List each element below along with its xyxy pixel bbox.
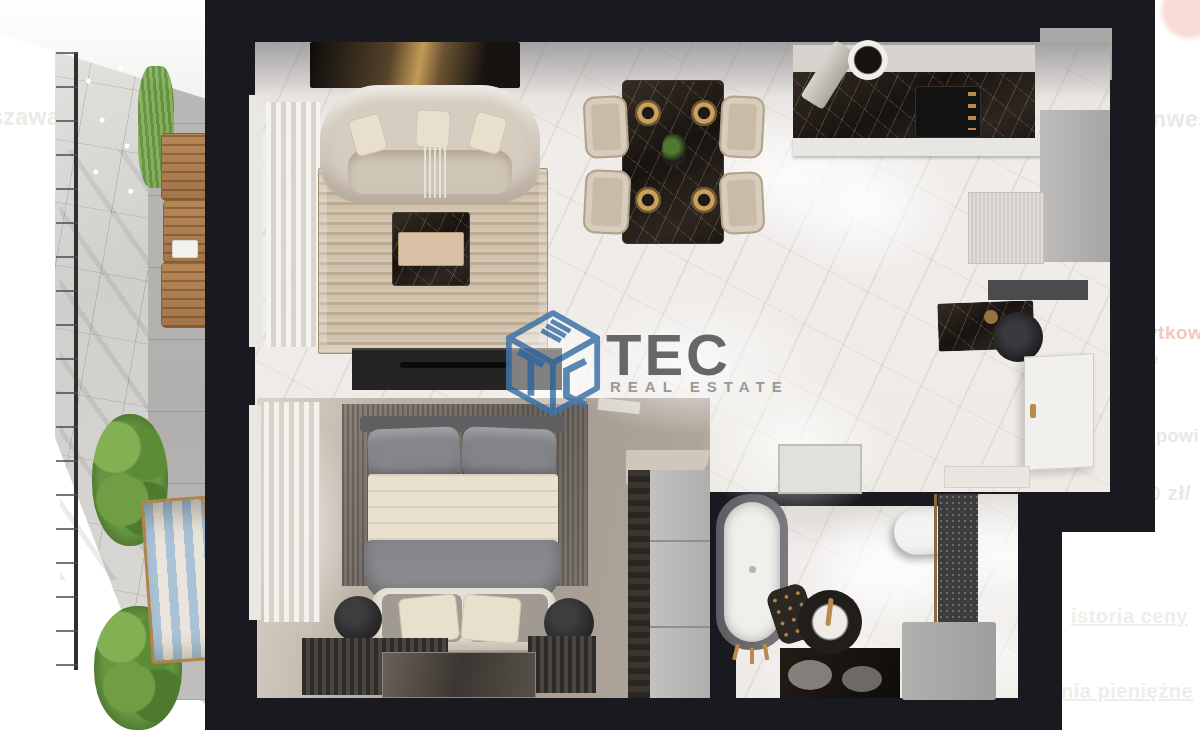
wall-step <box>1016 490 1155 532</box>
wall-bottom <box>205 695 1060 730</box>
window-sill-living <box>249 95 263 347</box>
bed-duvet <box>368 474 558 546</box>
watermark-cube-logo <box>505 310 601 416</box>
bath-faucet <box>750 648 754 664</box>
sofa-throw-fringe <box>424 146 446 198</box>
table-tray <box>172 240 198 258</box>
place-setting <box>634 99 662 127</box>
floorplan-image[interactable]: TEC REAL ESTATE <box>0 0 1200 730</box>
glass-low-table <box>382 652 536 698</box>
fridge-cabinet <box>968 192 1044 264</box>
bedroom-curtains <box>264 402 320 622</box>
table-centerpiece <box>662 134 686 166</box>
tv-console-slot <box>400 362 510 368</box>
wall-top <box>255 0 1155 45</box>
wardrobe <box>650 470 710 698</box>
bed-pillow <box>367 426 461 479</box>
listing-photo-viewer: A.DOM szawa nwes ytkowy e ² powi 0 zł/ i… <box>0 0 1200 730</box>
dining-chair <box>718 95 765 159</box>
balcony-chair <box>161 133 209 201</box>
basin-reflection <box>788 660 832 690</box>
wardrobe-seam <box>650 626 710 628</box>
bench-pillow <box>460 594 522 645</box>
living-curtains <box>266 102 320 347</box>
wall-art-panel <box>310 42 520 88</box>
wall-bathroom-right <box>1016 530 1062 730</box>
dining-chair <box>718 171 765 235</box>
bed-pillow <box>461 426 557 479</box>
kitchen-sink <box>848 40 888 80</box>
balcony-chair <box>161 262 209 328</box>
place-setting <box>690 99 718 127</box>
wardrobe-interior <box>628 470 650 698</box>
desk-decor <box>984 310 998 324</box>
basin-reflection <box>842 666 882 692</box>
dining-chair <box>582 169 631 235</box>
hall-shelf <box>988 280 1088 300</box>
place-setting <box>690 186 718 214</box>
washing-machine <box>902 622 996 700</box>
bedroom-runner-rug <box>528 636 596 693</box>
place-setting <box>634 186 662 214</box>
office-chair <box>993 312 1043 362</box>
wardrobe-seam <box>650 540 710 542</box>
pouf <box>334 596 382 642</box>
shower-tray <box>778 444 862 494</box>
entry-doormat <box>944 466 1030 488</box>
dining-chair <box>582 95 629 159</box>
cooktop-knobs <box>968 92 976 130</box>
shower-mosaic-wall <box>938 494 978 642</box>
watermark-tagline: REAL ESTATE <box>610 378 789 395</box>
bathtub-drain <box>749 566 756 573</box>
coffee-table-tray <box>398 232 464 266</box>
kitchen-tall-cabinet <box>1040 110 1110 262</box>
watermark-brand: TEC <box>606 326 731 384</box>
door-handle <box>1030 404 1036 418</box>
window-sill-bedroom <box>249 405 261 620</box>
sofa-pillow <box>415 109 451 149</box>
